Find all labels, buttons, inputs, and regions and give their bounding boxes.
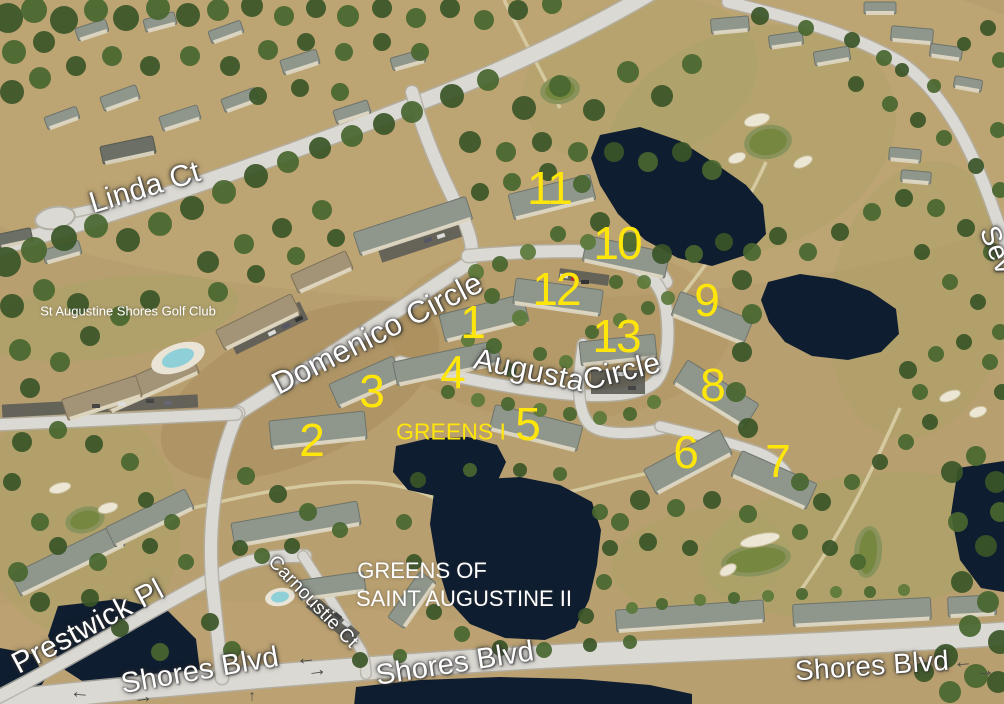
street-label-shores-blvd-mid: Shores Blvd — [374, 637, 536, 691]
area-label-greens-ii-line1: GREENS OF — [357, 560, 487, 582]
building-number-10: 10 — [593, 220, 640, 266]
street-label-carnoustie-ct: Carnoustie Ct — [264, 552, 361, 652]
street-label-seville-partial: Sev — [975, 222, 1004, 278]
road-arrow-left-icon: ← — [953, 652, 974, 673]
building-number-13: 13 — [592, 313, 639, 359]
area-label-greens-ii-line2: SAINT AUGUSTINE II — [356, 588, 572, 610]
area-label-greens-i: GREENS I — [396, 421, 506, 444]
road-arrow-right-icon: → — [132, 686, 155, 704]
building-number-9: 9 — [694, 277, 718, 323]
building-number-8: 8 — [700, 362, 724, 408]
building-number-7: 7 — [765, 438, 789, 484]
building-number-12: 12 — [532, 266, 579, 312]
area-label-golf-club: St Augustine Shores Golf Club — [40, 305, 216, 318]
building-number-1: 1 — [460, 299, 484, 345]
street-label-augusta: Augusta — [471, 345, 587, 398]
street-label-linda-ct: Linda Ct — [86, 157, 204, 219]
building-number-11: 11 — [527, 165, 571, 211]
building-number-6: 6 — [673, 429, 697, 475]
road-arrow-right-icon: → — [306, 659, 329, 682]
road-arrow-up-icon: ↑ — [248, 689, 256, 704]
road-arrow-left-icon: ← — [69, 681, 91, 703]
map-labels-layer: Linda CtDomenico CircleAugustaCirclePres… — [0, 0, 1004, 704]
building-number-3: 3 — [359, 368, 383, 414]
building-number-2: 2 — [299, 417, 323, 463]
street-label-shores-blvd-right: Shores Blvd — [794, 647, 950, 686]
aerial-map[interactable]: Linda CtDomenico CircleAugustaCirclePres… — [0, 0, 1004, 704]
building-number-4: 4 — [440, 349, 464, 395]
building-number-5: 5 — [515, 401, 539, 447]
road-arrow-right-icon: → — [975, 661, 996, 682]
